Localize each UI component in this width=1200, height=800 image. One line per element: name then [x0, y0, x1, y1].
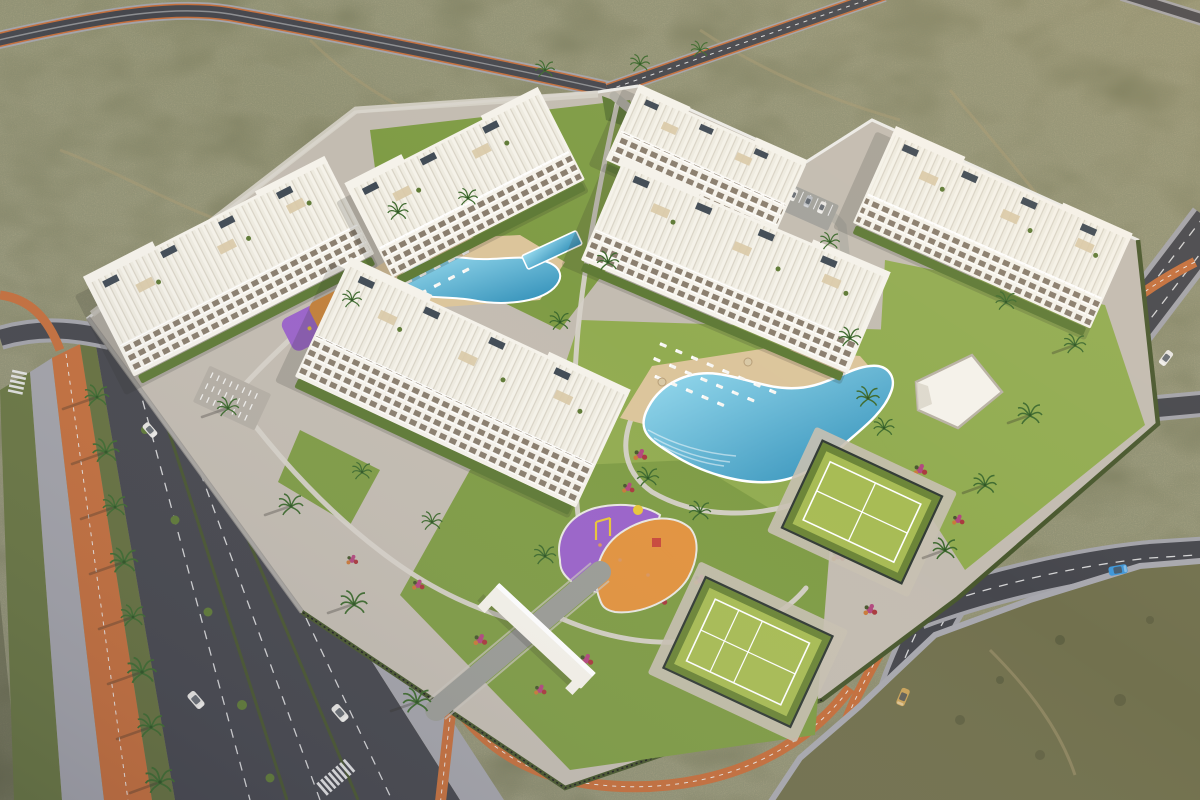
aerial-render-stage — [0, 0, 1200, 800]
light-overlay — [0, 0, 1200, 800]
aerial-render — [0, 0, 1200, 800]
